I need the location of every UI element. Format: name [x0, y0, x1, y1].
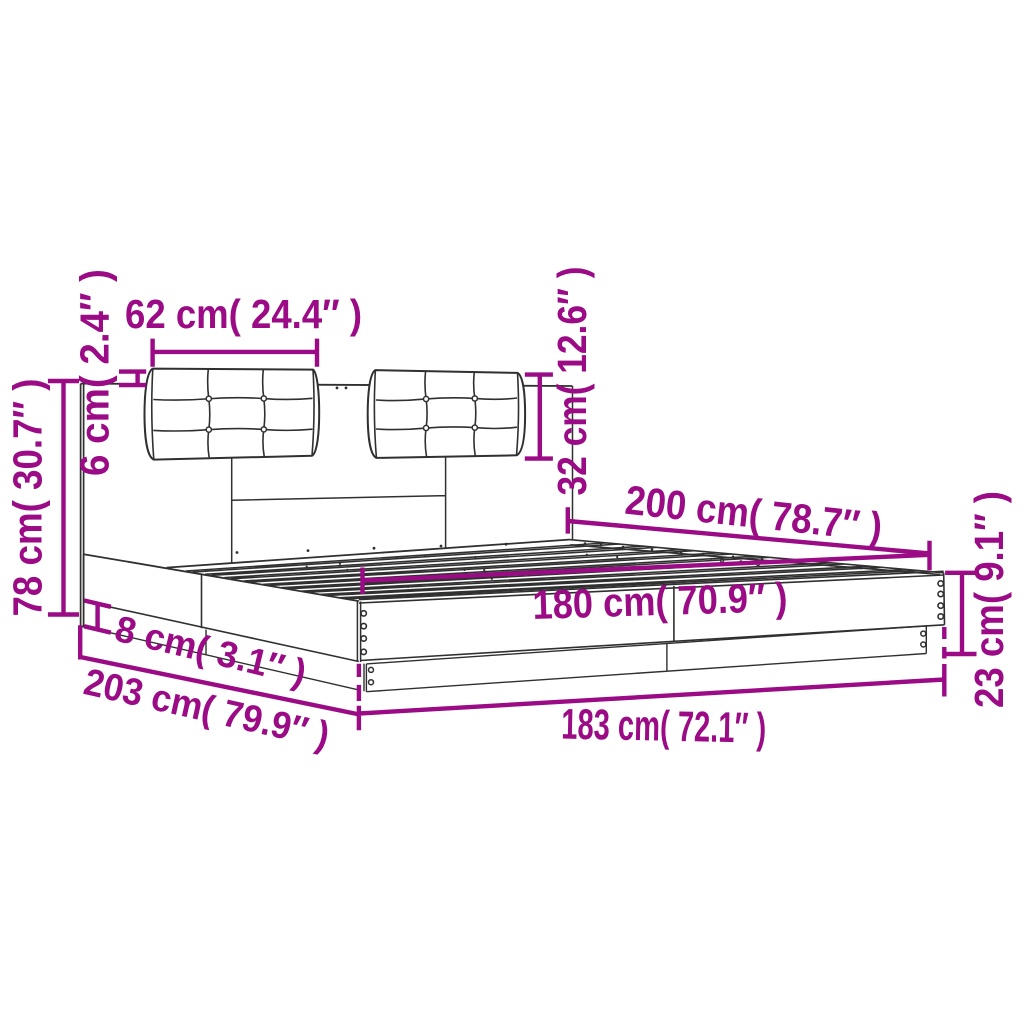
svg-text:78 cm( 30.7″ ): 78 cm( 30.7″ ): [5, 379, 51, 617]
svg-text:23 cm( 9.1″ ): 23 cm( 9.1″ ): [966, 491, 1012, 708]
svg-text:183 cm( 72.1″ ): 183 cm( 72.1″ ): [561, 701, 767, 753]
svg-text:62 cm( 24.4″ ): 62 cm( 24.4″ ): [125, 291, 362, 337]
svg-text:32 cm( 12.6″ ): 32 cm( 12.6″ ): [549, 267, 595, 496]
svg-text:180 cm( 70.9″ ): 180 cm( 70.9″ ): [532, 574, 788, 628]
svg-text:6 cm( 2.4″ ): 6 cm( 2.4″ ): [72, 269, 118, 476]
